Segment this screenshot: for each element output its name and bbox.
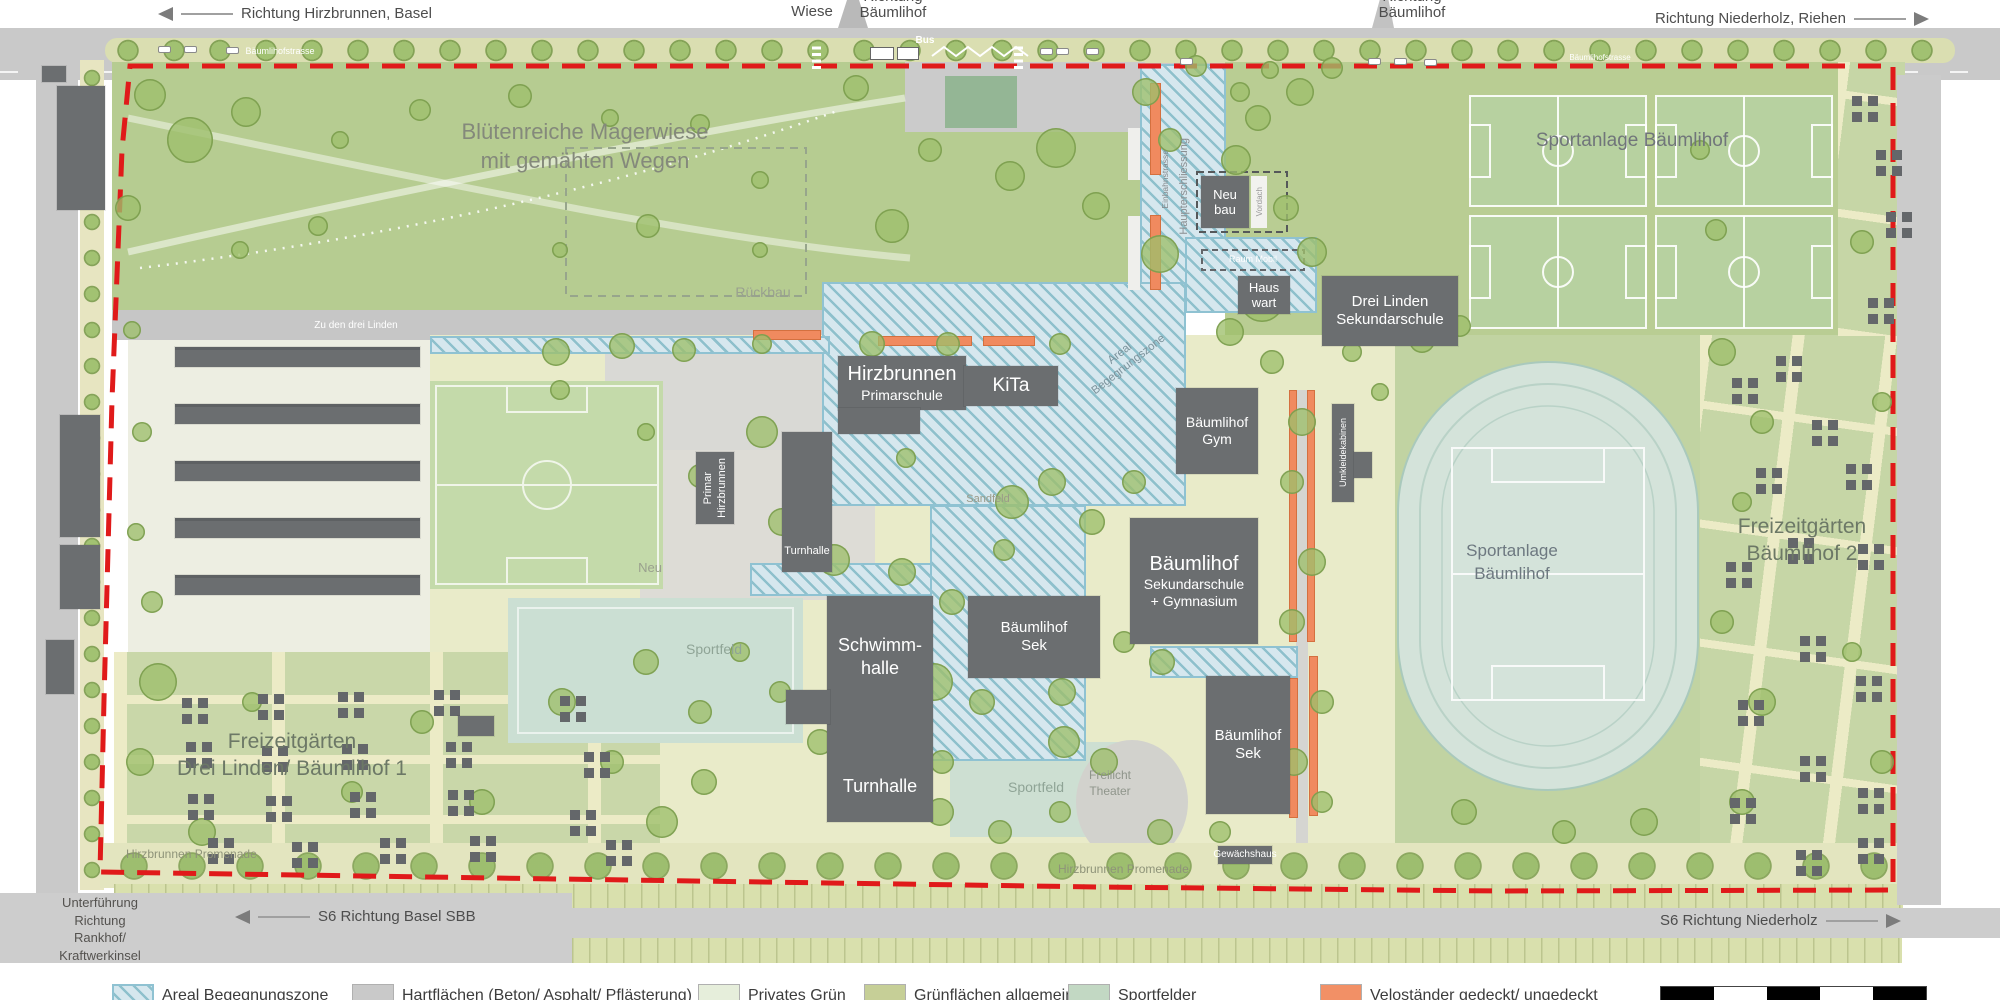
tree-icon bbox=[646, 806, 678, 838]
direction-baeumlihof-2: Bäumlihof bbox=[1379, 4, 1446, 21]
building-apartment-slab bbox=[60, 415, 100, 537]
building-apartment-slab bbox=[42, 66, 66, 82]
building-drei-linden-sekundarschule: Drei Linden Sekundarschule bbox=[1322, 276, 1458, 346]
garden-hut-cluster bbox=[446, 742, 472, 768]
tree-icon bbox=[1038, 468, 1066, 496]
tree-icon bbox=[1310, 690, 1334, 714]
tree-icon bbox=[141, 591, 163, 613]
baeumlihofstrasse-label: Bäumlihofstrasse bbox=[245, 46, 314, 56]
underpass-label: Unterführung Richtung Rankhof/ Kraftwerk… bbox=[59, 894, 141, 964]
tree-icon bbox=[1216, 318, 1244, 346]
building-rowhouse bbox=[175, 347, 420, 367]
tree-icon bbox=[633, 649, 659, 675]
car-icon bbox=[1056, 48, 1069, 55]
tree-icon bbox=[1870, 750, 1894, 774]
arrow-left-icon bbox=[158, 7, 173, 21]
building-primar-hirzbrunnen: Primar Hirzbrunnen bbox=[696, 452, 734, 524]
meadow-label: Blütenreiche Magerwiese mit gemähten Weg… bbox=[461, 118, 708, 175]
tree-icon bbox=[1082, 192, 1110, 220]
car-icon bbox=[1180, 58, 1193, 65]
building-schwimmhalle-turnhalle: Schwimm- halle Turnhalle bbox=[827, 596, 933, 822]
building-baeumlihof-sek-1: Bäumlihof Sek bbox=[968, 596, 1100, 678]
building-apartment-slab bbox=[46, 640, 74, 694]
arrow-line bbox=[181, 13, 233, 15]
building-kita: KiTa bbox=[964, 366, 1058, 406]
tree-icon bbox=[1209, 821, 1231, 843]
garden-hut-cluster bbox=[1812, 420, 1838, 446]
car-icon bbox=[1368, 58, 1381, 65]
sportanlage-track-label: Sportanlage Bäumlihof bbox=[1466, 540, 1558, 586]
site-plan-baeumlihof: Neu bau Vordach Raum Mobil Haus wart Dre… bbox=[0, 0, 2000, 1000]
rueckbau-label: Rückbau bbox=[735, 284, 790, 300]
arrow-line bbox=[258, 916, 310, 918]
arrow-line bbox=[1826, 920, 1878, 922]
scale-bar bbox=[1660, 986, 1927, 1000]
tree-icon bbox=[115, 195, 141, 221]
tree-icon bbox=[542, 338, 570, 366]
tree-icon bbox=[1280, 470, 1304, 494]
building-garden-shed bbox=[458, 716, 494, 736]
garden-hut-cluster bbox=[1852, 96, 1878, 122]
tree-icon bbox=[1141, 235, 1179, 273]
tree-icon bbox=[126, 748, 154, 776]
neu-label: Neu bbox=[638, 560, 662, 575]
legend-label: Sportfelder bbox=[1118, 987, 1196, 1000]
car-icon bbox=[184, 46, 197, 53]
tree-icon bbox=[1132, 78, 1160, 106]
car-icon bbox=[158, 46, 171, 53]
tree-icon bbox=[939, 589, 965, 615]
velostaender-bar bbox=[983, 336, 1035, 346]
tree-icon bbox=[752, 242, 768, 258]
tree-icon bbox=[123, 321, 141, 339]
garden-hut-cluster bbox=[1858, 838, 1884, 864]
legend-swatch-hartflaechen bbox=[352, 984, 394, 1000]
car-icon bbox=[1040, 48, 1053, 55]
tree-icon bbox=[930, 750, 954, 774]
garden-hut-cluster bbox=[1846, 464, 1872, 490]
garden-hut-cluster bbox=[1756, 468, 1782, 494]
tree-icon bbox=[1279, 609, 1305, 635]
legend-label: Areal Begegnungszone bbox=[162, 987, 328, 1000]
tree-icon bbox=[167, 117, 213, 163]
tree-icon bbox=[691, 769, 717, 795]
building-neubau: Neu bau bbox=[1201, 176, 1249, 228]
tree-icon bbox=[896, 448, 916, 468]
crosswalk bbox=[812, 43, 821, 69]
tree-icon bbox=[1321, 57, 1343, 79]
freizeitgaerten-1-label: Freizeitgärten Drei Linden/ Bäumlihof 1 bbox=[177, 728, 407, 783]
tree-icon bbox=[1710, 610, 1734, 634]
building-schwimmhalle-wing bbox=[786, 690, 830, 724]
building-baeumlihof-sek-gymnasium: Bäumlihof Sekundarschule + Gymnasium bbox=[1130, 518, 1258, 644]
tree-icon bbox=[988, 820, 1012, 844]
tree-icon bbox=[995, 161, 1025, 191]
arrow-left-icon bbox=[235, 910, 250, 924]
tree-icon bbox=[1371, 383, 1389, 401]
garden-hut-cluster bbox=[470, 836, 496, 862]
legend-swatch-begegnungszone bbox=[112, 984, 154, 1000]
tree-icon bbox=[1552, 820, 1576, 844]
tree-icon bbox=[875, 209, 909, 243]
tree-icon bbox=[132, 422, 152, 442]
building-hauswart: Haus wart bbox=[1238, 276, 1290, 314]
building-umkleide-annex bbox=[1354, 452, 1372, 478]
direction-top-right: Richtung Niederholz, Riehen bbox=[1655, 10, 1929, 27]
tree-icon bbox=[1750, 410, 1774, 434]
promenade-label-1: Hirzbrunnen Promenade bbox=[126, 847, 257, 861]
garden-hut-cluster bbox=[584, 752, 610, 778]
building-vordach: Vordach bbox=[1251, 176, 1267, 228]
tree-icon bbox=[746, 416, 778, 448]
building-hirzbrunnen-primarschule: Hirzbrunnen Primarschule bbox=[838, 356, 966, 410]
sportanlage-top-label: Sportanlage Bäumlihof bbox=[1536, 130, 1728, 152]
garden-hut-cluster bbox=[1800, 636, 1826, 662]
building-apartment-slab bbox=[57, 86, 105, 210]
tree-icon bbox=[552, 242, 568, 258]
building-rowhouse bbox=[175, 461, 420, 481]
tree-icon bbox=[1872, 392, 1892, 412]
garden-hut-cluster bbox=[448, 790, 474, 816]
garden-hut-cluster bbox=[570, 810, 596, 836]
tree-icon bbox=[1230, 82, 1250, 102]
s6-basel-label: S6 Richtung Basel SBB bbox=[235, 908, 476, 925]
tree-icon bbox=[231, 97, 261, 127]
bus-shelter bbox=[897, 47, 919, 60]
garden-hut-cluster bbox=[188, 794, 214, 820]
building-umkleidekabinen: Umkleidekabinen bbox=[1332, 404, 1354, 502]
tree-icon bbox=[1261, 61, 1279, 79]
sportfeld-2-label: Sportfeld bbox=[1008, 779, 1064, 795]
tree-icon bbox=[1273, 195, 1299, 221]
garden-hut-cluster bbox=[560, 696, 586, 722]
tree-icon bbox=[1048, 678, 1076, 706]
zu-den-drei-linden-label: Zu den drei Linden bbox=[314, 320, 397, 331]
legend-swatch-sportfelder bbox=[1068, 984, 1110, 1000]
tree-icon bbox=[751, 171, 769, 189]
garden-hut-cluster bbox=[1886, 212, 1912, 238]
tree-icon bbox=[1221, 145, 1251, 175]
tree-icon bbox=[1842, 642, 1862, 662]
garden-hut-cluster bbox=[1738, 700, 1764, 726]
crosswalk bbox=[1014, 44, 1023, 69]
tree-icon bbox=[936, 332, 960, 356]
tree-icon bbox=[672, 338, 696, 362]
building-gewaechshaus: Gewächshaus bbox=[1218, 846, 1272, 864]
direction-baeumlihof: Bäumlihof bbox=[860, 4, 927, 21]
tree-icon bbox=[410, 710, 434, 734]
tree-icon bbox=[843, 75, 869, 101]
garden-hut-cluster bbox=[380, 838, 406, 864]
legend-label: Privates Grün bbox=[748, 987, 846, 1000]
tree-icon bbox=[409, 99, 431, 121]
baeumlihofstrasse-label-2: Bäumlihofstrasse bbox=[1569, 53, 1630, 62]
tree-icon bbox=[1298, 548, 1326, 576]
tree-icon bbox=[308, 216, 328, 236]
garden-hut-cluster bbox=[1732, 378, 1758, 404]
legend-swatch-privates-gruen bbox=[698, 984, 740, 1000]
building-rowhouse bbox=[175, 575, 420, 595]
tree-icon bbox=[1708, 338, 1736, 366]
building-baeumlihof-sek-2: Bäumlihof Sek bbox=[1206, 676, 1290, 814]
tree-icon bbox=[1260, 350, 1284, 374]
freilicht-theater-label: Freilicht Theater bbox=[1089, 768, 1131, 799]
direction-top-left: Richtung Hirzbrunnen, Basel bbox=[158, 5, 432, 22]
haupterschliessung-label: Haupterschliessung bbox=[1178, 138, 1190, 235]
car-icon bbox=[1424, 59, 1437, 66]
freizeitgaerten-2-label: Freizeitgärten Bäumlihof 2 bbox=[1738, 513, 1866, 568]
building-rowhouse bbox=[175, 518, 420, 538]
tree-icon bbox=[888, 558, 916, 586]
garden-hut-cluster bbox=[1730, 798, 1756, 824]
building-hirzbrunnen-wing bbox=[838, 408, 920, 434]
einbahnstrasse-label: Einbahnstrasse bbox=[1160, 150, 1170, 209]
arrow-line bbox=[1854, 18, 1906, 20]
s6-niederholz-label: S6 Richtung Niederholz bbox=[1660, 912, 1901, 929]
building-apartment-slab bbox=[60, 545, 100, 609]
tree-icon bbox=[688, 700, 712, 724]
garden-hut-cluster bbox=[258, 694, 284, 720]
building-baeumlihof-gym: Bäumlihof Gym bbox=[1176, 388, 1258, 474]
tree-icon bbox=[1297, 237, 1327, 267]
promenade-label-2: Hirzbrunnen Promenade bbox=[1058, 862, 1189, 876]
tree-icon bbox=[1732, 492, 1752, 512]
garden-hut-cluster bbox=[1800, 756, 1826, 782]
arrow-right-icon bbox=[1914, 12, 1929, 26]
tree-icon bbox=[1049, 333, 1071, 355]
legend-label: Hartflächen (Beton/ Asphalt/ Pflästerung… bbox=[402, 987, 692, 1000]
tree-icon bbox=[969, 689, 995, 715]
football-pitch-left-lines bbox=[436, 386, 658, 584]
raum-mobil-label: Raum Mobil bbox=[1229, 254, 1277, 264]
tree-icon bbox=[550, 380, 570, 400]
tree-icon bbox=[609, 333, 635, 359]
garden-hut-cluster bbox=[1796, 850, 1822, 876]
tree-icon bbox=[1451, 799, 1477, 825]
tree-icon bbox=[637, 423, 655, 441]
tree-icon bbox=[918, 138, 942, 162]
building-rowhouse bbox=[175, 404, 420, 424]
sandfeld-label: Sandfeld bbox=[966, 493, 1009, 505]
car-icon bbox=[1086, 48, 1099, 55]
legend-swatch-gruenflaechen bbox=[864, 984, 906, 1000]
garden-hut-cluster bbox=[1868, 298, 1894, 324]
tree-icon bbox=[331, 131, 349, 149]
tree-icon bbox=[1705, 219, 1727, 241]
arrow-right-icon bbox=[1886, 914, 1901, 928]
garden-hut-cluster bbox=[350, 792, 376, 818]
garden-hut-cluster bbox=[1776, 356, 1802, 382]
tree-icon bbox=[1048, 726, 1080, 758]
tree-icon bbox=[1147, 819, 1173, 845]
tree-icon bbox=[1079, 509, 1105, 535]
tree-icon bbox=[1311, 791, 1333, 813]
tree-icon bbox=[636, 214, 660, 238]
tree-icon bbox=[1288, 408, 1316, 436]
vordach-label: Vordach bbox=[1255, 187, 1264, 216]
tree-icon bbox=[1149, 649, 1175, 675]
garden-hut-cluster bbox=[292, 842, 318, 868]
tree-icon bbox=[1036, 128, 1076, 168]
tree-icon bbox=[1122, 470, 1146, 494]
garden-hut-cluster bbox=[1858, 788, 1884, 814]
garden-hut-cluster bbox=[266, 796, 292, 822]
legend-swatch-velostaender bbox=[1320, 984, 1362, 1000]
tree-icon bbox=[993, 539, 1015, 561]
tree-icon bbox=[1049, 801, 1071, 823]
legend-label: Grünflächen allgemein bbox=[914, 987, 1074, 1000]
garden-hut-cluster bbox=[434, 690, 460, 716]
tree-icon bbox=[1850, 230, 1874, 254]
direction-wiese: Wiese bbox=[791, 3, 833, 20]
tree-icon bbox=[134, 79, 166, 111]
legend-label: Veloständer gedeckt/ ungedeckt bbox=[1370, 987, 1598, 1000]
tree-icon bbox=[139, 663, 177, 701]
garden-hut-cluster bbox=[1856, 676, 1882, 702]
tree-icon bbox=[1630, 808, 1658, 836]
tree-icon bbox=[1245, 105, 1271, 131]
garden-hut-cluster bbox=[606, 840, 632, 866]
bus-label: Bus bbox=[916, 35, 935, 46]
tree-icon bbox=[859, 331, 885, 357]
garden-hut-cluster bbox=[182, 698, 208, 724]
building-turnhalle-small: Turnhalle bbox=[782, 432, 832, 572]
garden-hut-cluster bbox=[338, 692, 364, 718]
sportfeld-1-label: Sportfeld bbox=[686, 641, 742, 657]
tree-icon bbox=[508, 84, 532, 108]
tree-icon bbox=[231, 241, 249, 259]
bus-shelter bbox=[870, 47, 894, 60]
tree-icon bbox=[1286, 78, 1314, 106]
car-icon bbox=[1394, 58, 1407, 65]
tree-icon bbox=[752, 334, 772, 354]
car-icon bbox=[226, 47, 239, 54]
tree-icon bbox=[127, 523, 145, 541]
garden-hut-cluster bbox=[1876, 150, 1902, 176]
